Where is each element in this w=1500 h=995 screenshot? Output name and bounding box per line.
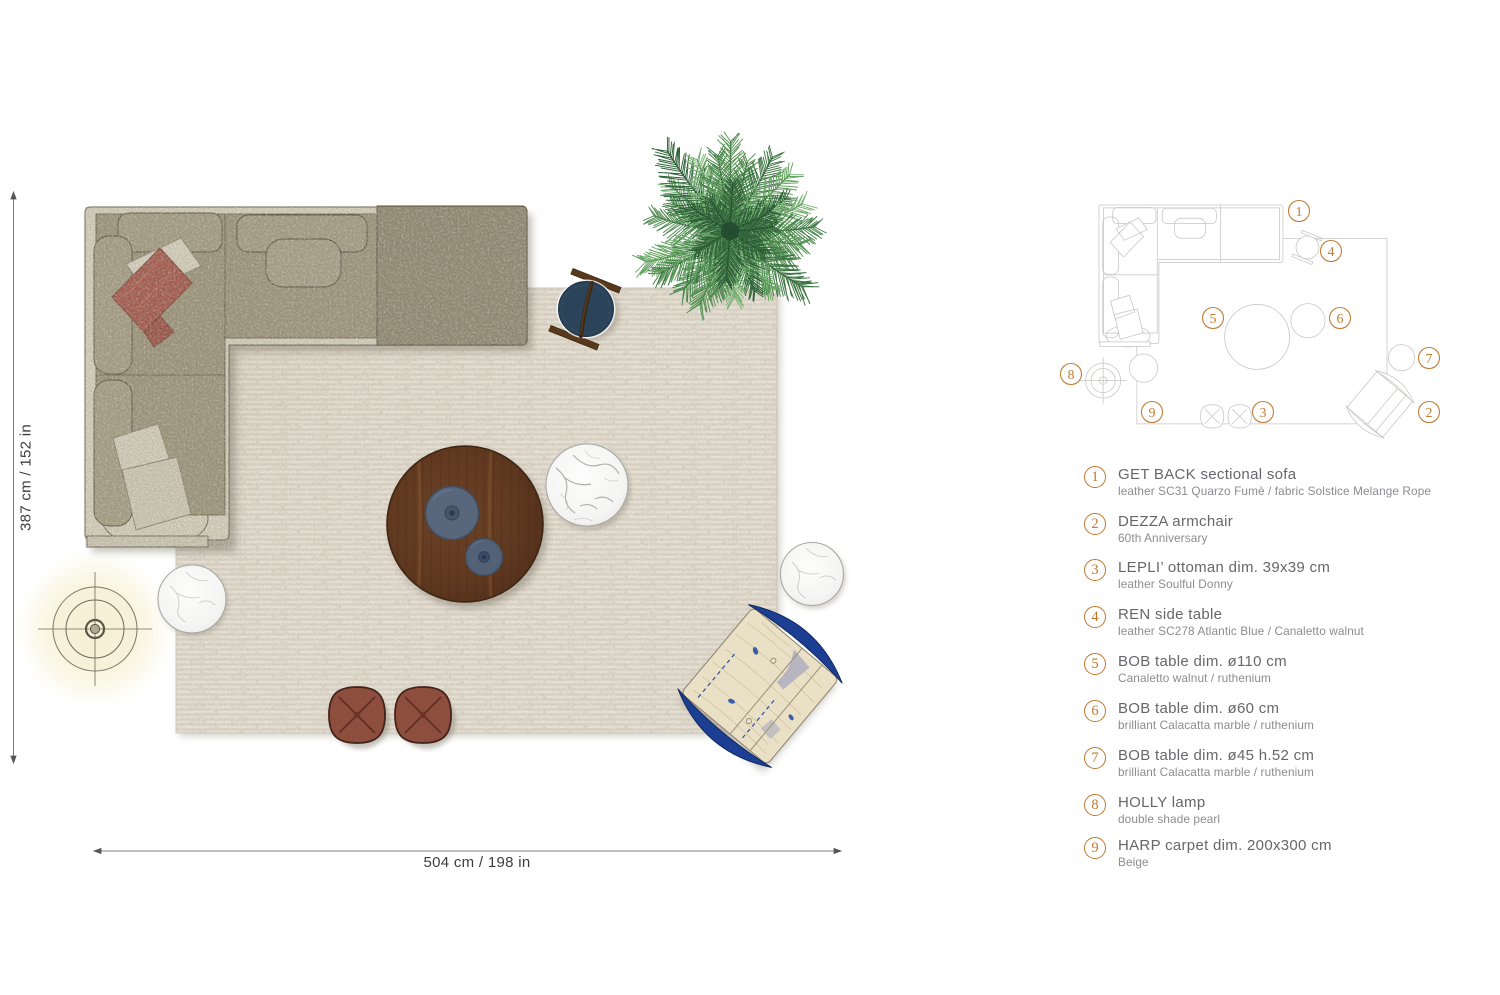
svg-text:4: 4 xyxy=(1328,245,1335,260)
svg-text:9: 9 xyxy=(1149,406,1156,421)
svg-text:3: 3 xyxy=(1260,406,1267,421)
svg-text:6: 6 xyxy=(1337,312,1344,327)
svg-text:8: 8 xyxy=(1068,368,1075,383)
svg-text:5: 5 xyxy=(1210,312,1217,327)
svg-text:2: 2 xyxy=(1426,406,1433,421)
svg-text:1: 1 xyxy=(1296,205,1303,220)
svg-text:7: 7 xyxy=(1426,352,1433,367)
